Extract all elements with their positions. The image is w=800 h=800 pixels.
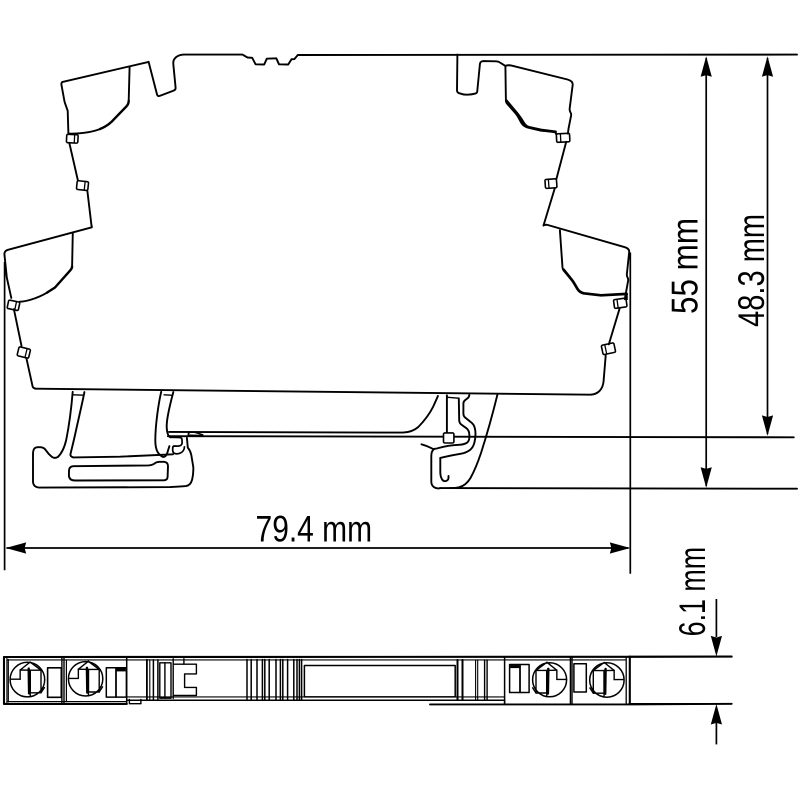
svg-text:79.4 mm: 79.4 mm (256, 509, 373, 550)
svg-text:48.3 mm: 48.3 mm (731, 214, 772, 327)
svg-text:6.1 mm: 6.1 mm (672, 547, 713, 637)
svg-text:55 mm: 55 mm (665, 218, 706, 314)
